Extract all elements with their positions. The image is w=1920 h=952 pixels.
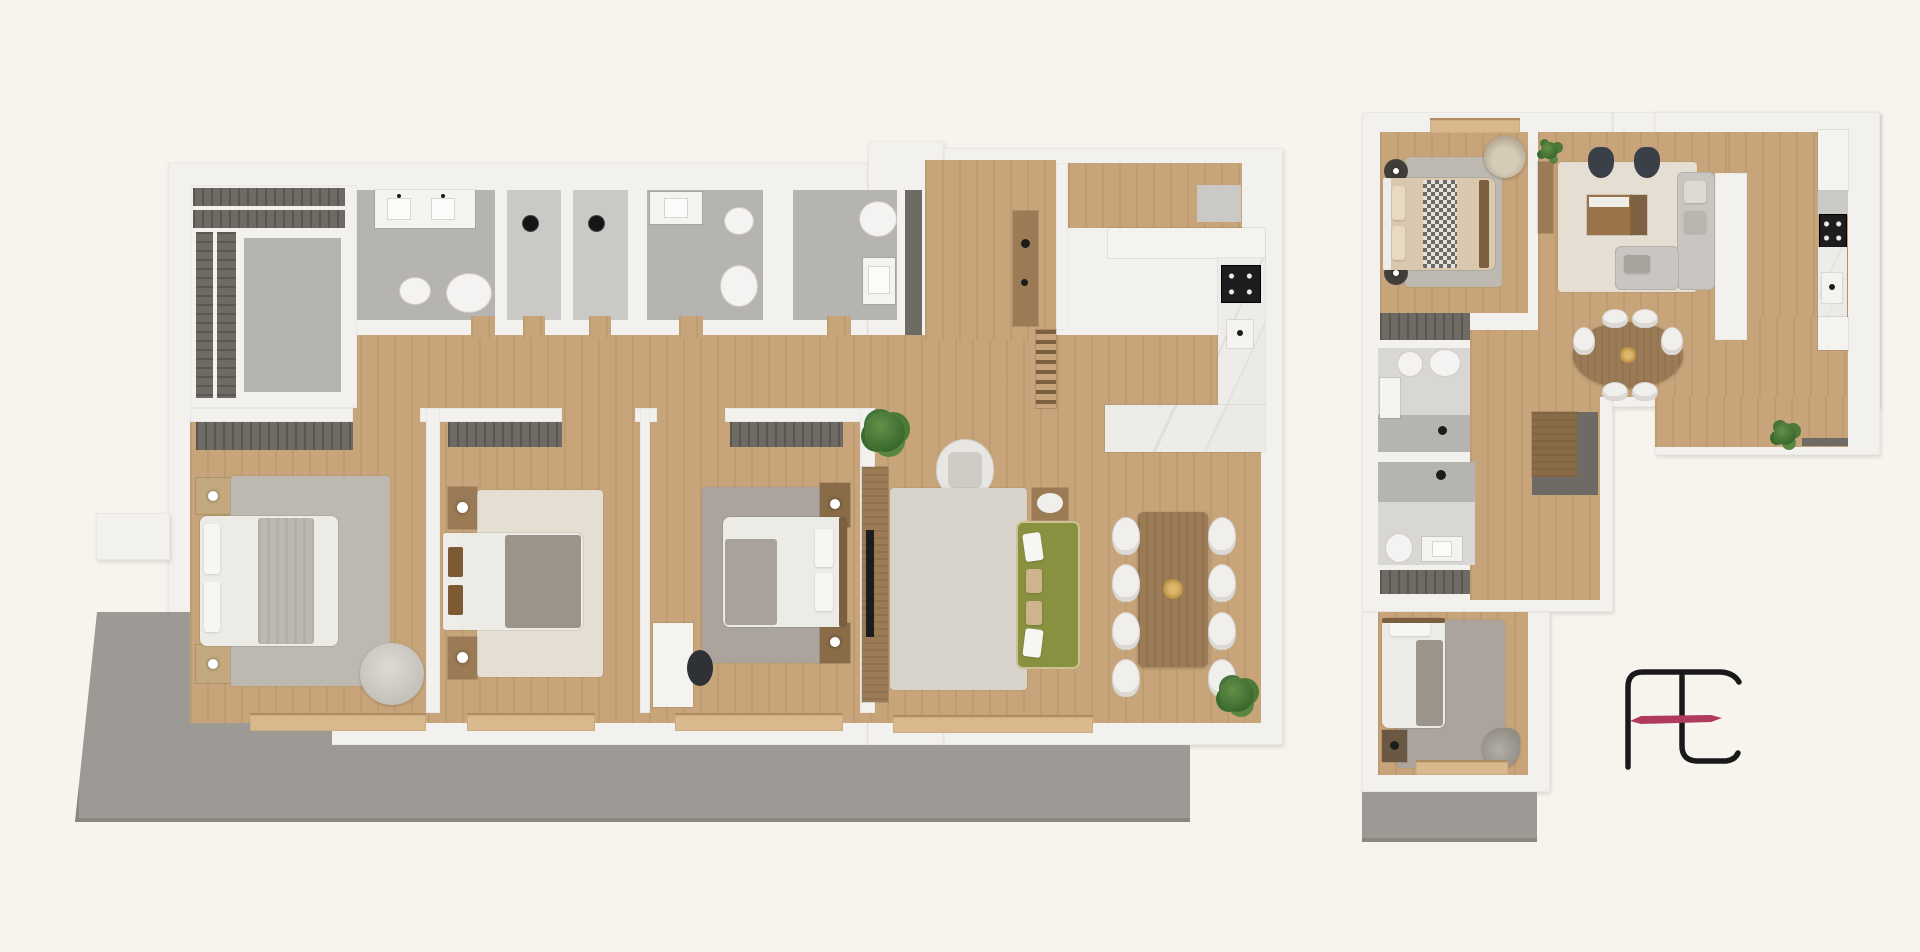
partition-wall	[1715, 173, 1747, 340]
shower-area	[1378, 415, 1470, 452]
wardrobe	[196, 422, 353, 450]
console-table	[1013, 211, 1038, 326]
kitchen-tall-cabinet	[1197, 185, 1241, 222]
wardrobe	[1380, 570, 1470, 594]
wardrobe	[448, 422, 562, 447]
hallway-wall	[190, 408, 353, 422]
double-sink-vanity	[375, 190, 475, 228]
hallway-wall	[725, 408, 875, 422]
plant	[1541, 142, 1558, 159]
terrace	[1362, 792, 1537, 842]
dining-chair	[1574, 328, 1594, 354]
toilet	[1386, 534, 1412, 562]
desk-chair	[687, 650, 713, 686]
door-opening	[523, 316, 545, 338]
closet-floor	[240, 234, 345, 396]
shower-area	[1378, 462, 1475, 502]
balcony-sill	[250, 713, 426, 731]
dining-chair	[1209, 518, 1235, 554]
toilet	[1430, 350, 1460, 376]
dining-chair	[1113, 613, 1139, 649]
dining-chair	[1633, 310, 1657, 327]
dining-chair	[1209, 613, 1235, 649]
kitchen-counter	[1108, 228, 1265, 258]
floor-plan-sheet	[0, 0, 1920, 952]
brand-logo-ft-monogram	[1618, 660, 1750, 772]
dining-chair	[1633, 383, 1657, 400]
nightstand	[196, 478, 230, 514]
sink-cabinet	[650, 192, 702, 224]
door-opening	[471, 316, 495, 338]
closet-shelving	[196, 232, 213, 398]
rug	[890, 488, 1027, 690]
cooktop	[1222, 266, 1260, 302]
balcony-sill	[893, 715, 1093, 733]
door-opening	[827, 316, 851, 338]
nightstand	[1382, 730, 1407, 762]
kitchen-island	[1105, 405, 1265, 452]
sink-cabinet	[863, 258, 895, 304]
bidet	[725, 208, 753, 234]
plant	[865, 412, 905, 452]
media-cabinet-side	[1631, 195, 1647, 235]
tv	[866, 530, 874, 637]
bidet	[1398, 352, 1422, 376]
shelf-strip	[1802, 438, 1848, 446]
dining-chair	[1113, 660, 1139, 696]
sink-cabinet	[1422, 537, 1462, 561]
dining-chair	[1113, 565, 1139, 601]
corner-sofa	[1678, 173, 1714, 289]
bedroom-wall	[426, 408, 440, 713]
toilet	[721, 266, 757, 306]
corner-closet	[1532, 412, 1577, 477]
wardrobe	[1380, 313, 1470, 340]
bed	[200, 516, 338, 646]
nightstand	[448, 487, 477, 529]
nightstand	[820, 623, 850, 663]
checker-throw	[1423, 180, 1457, 268]
dining-chair	[1603, 310, 1627, 327]
balcony-sill	[675, 713, 843, 731]
toilet	[860, 202, 896, 236]
corner-wardrobe	[1532, 477, 1598, 495]
large-apartment-plan	[75, 110, 1290, 845]
nightstand	[196, 645, 230, 683]
kitchen-sink	[1227, 320, 1253, 348]
nightstand	[448, 637, 477, 679]
bidet	[400, 278, 430, 304]
pendant-light-icon	[589, 216, 604, 231]
logo-accent-bar	[1630, 715, 1722, 724]
plant	[1774, 423, 1796, 445]
dining-chair	[1113, 518, 1139, 554]
kitchen-cabinet	[1818, 130, 1848, 190]
plant	[1220, 678, 1254, 712]
balcony-sill	[1416, 760, 1508, 775]
door-opening	[589, 316, 611, 338]
shower-room	[507, 190, 561, 320]
sink-cabinet	[1380, 378, 1400, 418]
round-armchair	[1484, 136, 1526, 178]
entry-partition	[1056, 163, 1068, 330]
bedroom-wall	[640, 408, 650, 713]
shower-drain-icon	[1438, 426, 1447, 435]
dining-chair	[1662, 328, 1682, 354]
kitchen-counter	[1818, 317, 1848, 350]
shower-room	[573, 190, 628, 320]
dining-chair	[1603, 383, 1627, 400]
kitchen-counter	[1818, 190, 1848, 215]
table-centerpiece	[1620, 347, 1636, 363]
shower-head-icon	[1436, 470, 1446, 480]
table-centerpiece	[1163, 579, 1183, 599]
closet-shelving	[217, 232, 236, 398]
wardrobe	[730, 422, 843, 447]
pouf	[360, 643, 424, 705]
wardrobe-panel	[905, 190, 922, 335]
side-table	[1032, 488, 1068, 520]
balcony-sill	[467, 713, 595, 731]
cooktop	[1820, 215, 1846, 247]
armchair	[1634, 147, 1660, 178]
bed	[443, 533, 583, 630]
bed	[723, 517, 847, 627]
dining-chair	[1209, 565, 1235, 601]
balcony-sill	[1430, 118, 1520, 133]
hallway-wall	[420, 408, 562, 422]
media-cabinet	[1587, 195, 1631, 235]
sideboard	[1538, 162, 1553, 233]
bed	[1382, 618, 1445, 728]
armchair	[1588, 147, 1614, 178]
closet-shelving	[193, 210, 345, 228]
wall-pillar	[96, 513, 170, 560]
toilet	[447, 274, 491, 312]
bed	[1383, 178, 1495, 270]
kitchen-sink	[1822, 273, 1842, 303]
closet-shelving	[193, 188, 345, 206]
corner-sofa-chaise	[1616, 247, 1678, 289]
pendant-light-icon	[523, 216, 538, 231]
door-opening	[679, 316, 703, 338]
olive-sofa	[1018, 523, 1078, 667]
stairs	[1036, 330, 1056, 408]
